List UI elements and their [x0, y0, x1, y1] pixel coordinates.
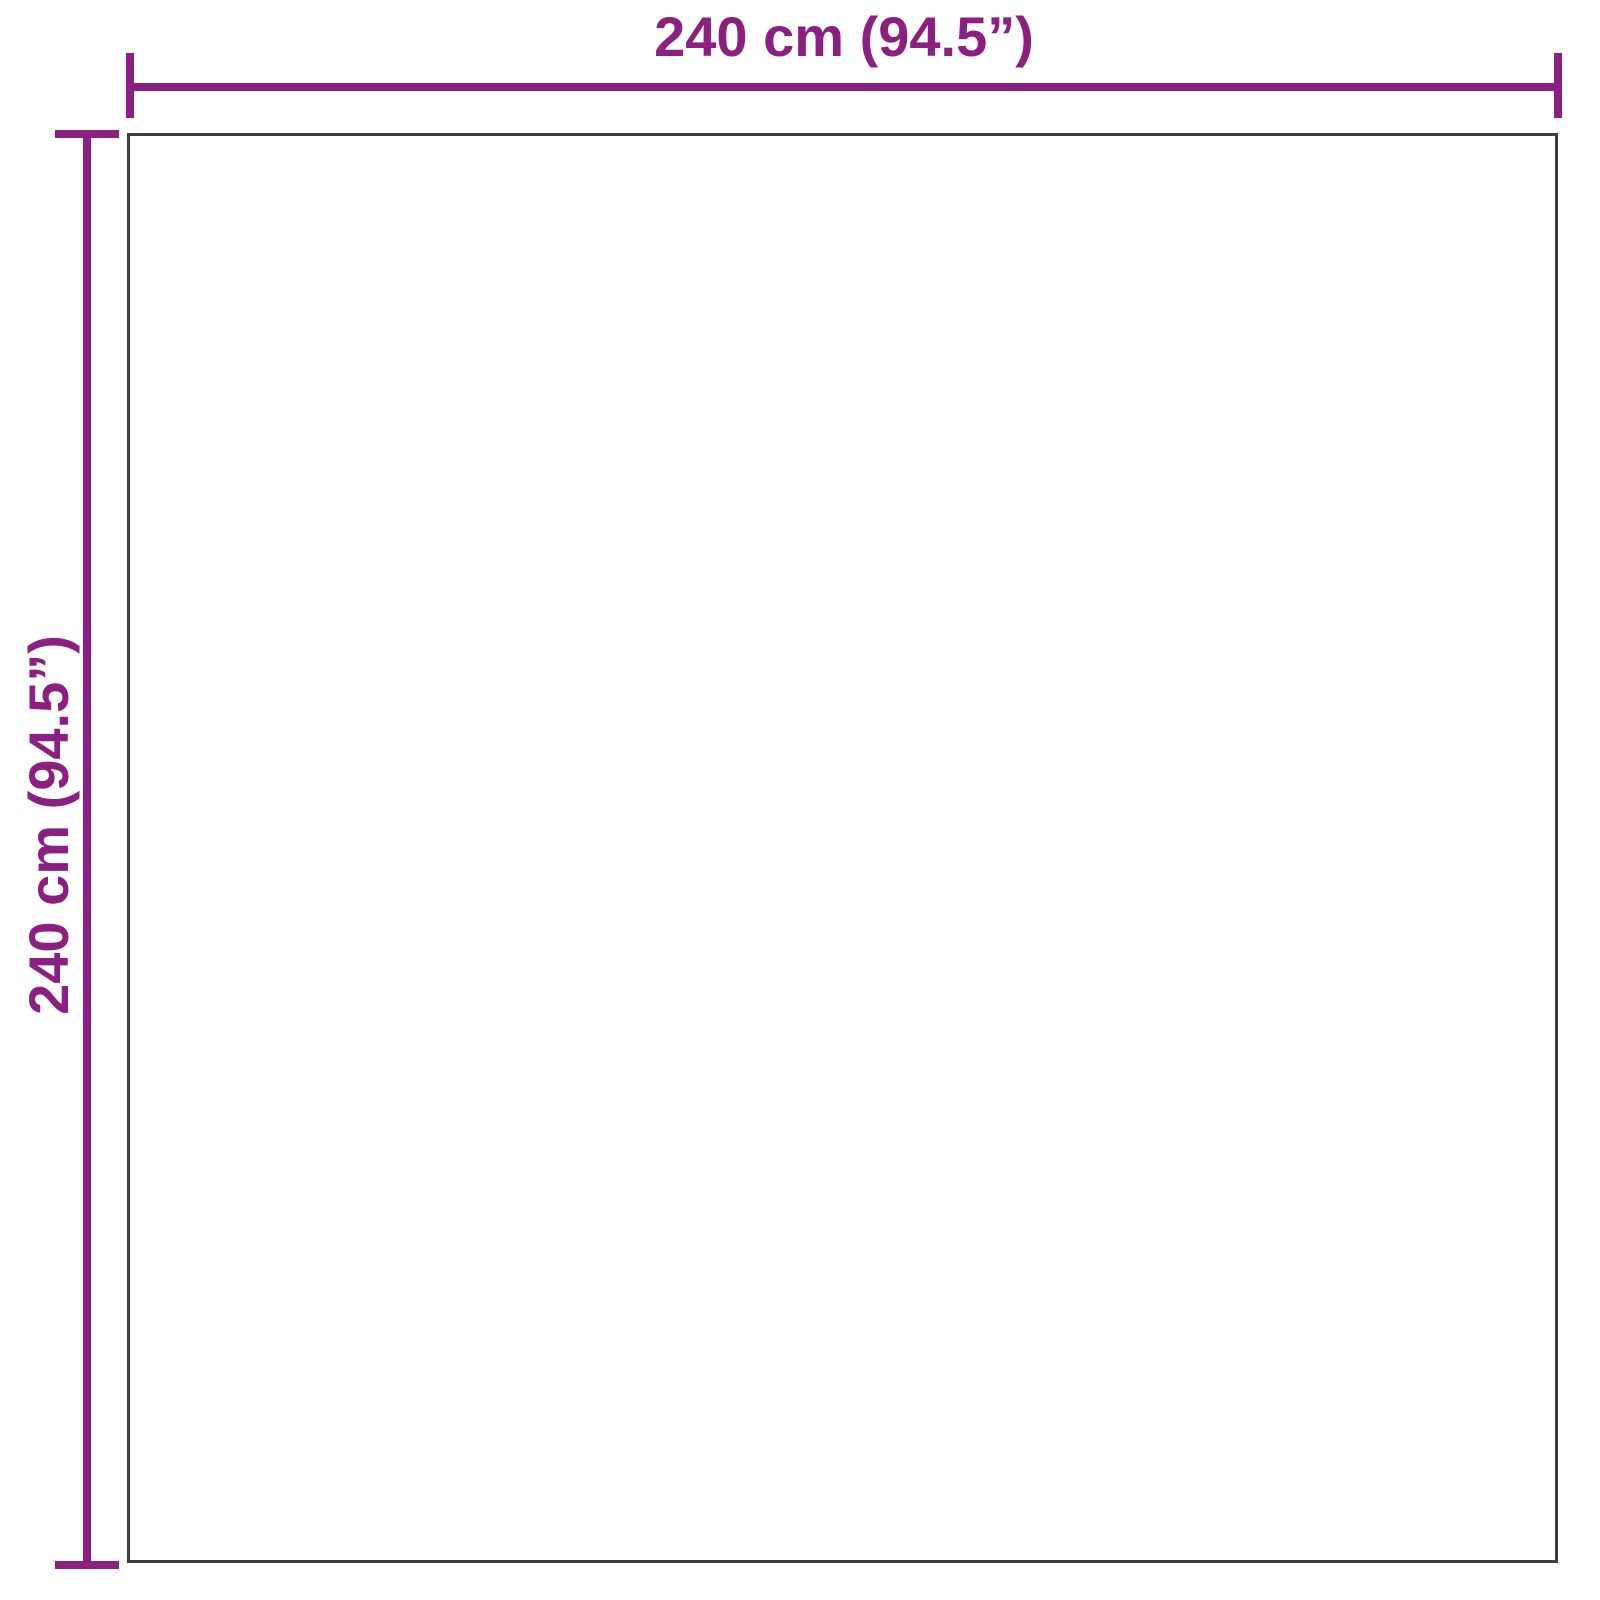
height-dimension-label: 240 cm (94.5”)	[18, 635, 80, 1015]
height-dimension-top-tick	[55, 130, 119, 138]
height-dimension-bottom-tick	[55, 1561, 119, 1569]
product-outline-square	[127, 133, 1558, 1563]
width-dimension-label: 240 cm (94.5”)	[126, 6, 1562, 68]
dimension-diagram: 240 cm (94.5”) 240 cm (94.5”)	[0, 0, 1600, 1600]
height-dimension-line	[83, 133, 91, 1569]
width-dimension-line	[126, 83, 1562, 91]
